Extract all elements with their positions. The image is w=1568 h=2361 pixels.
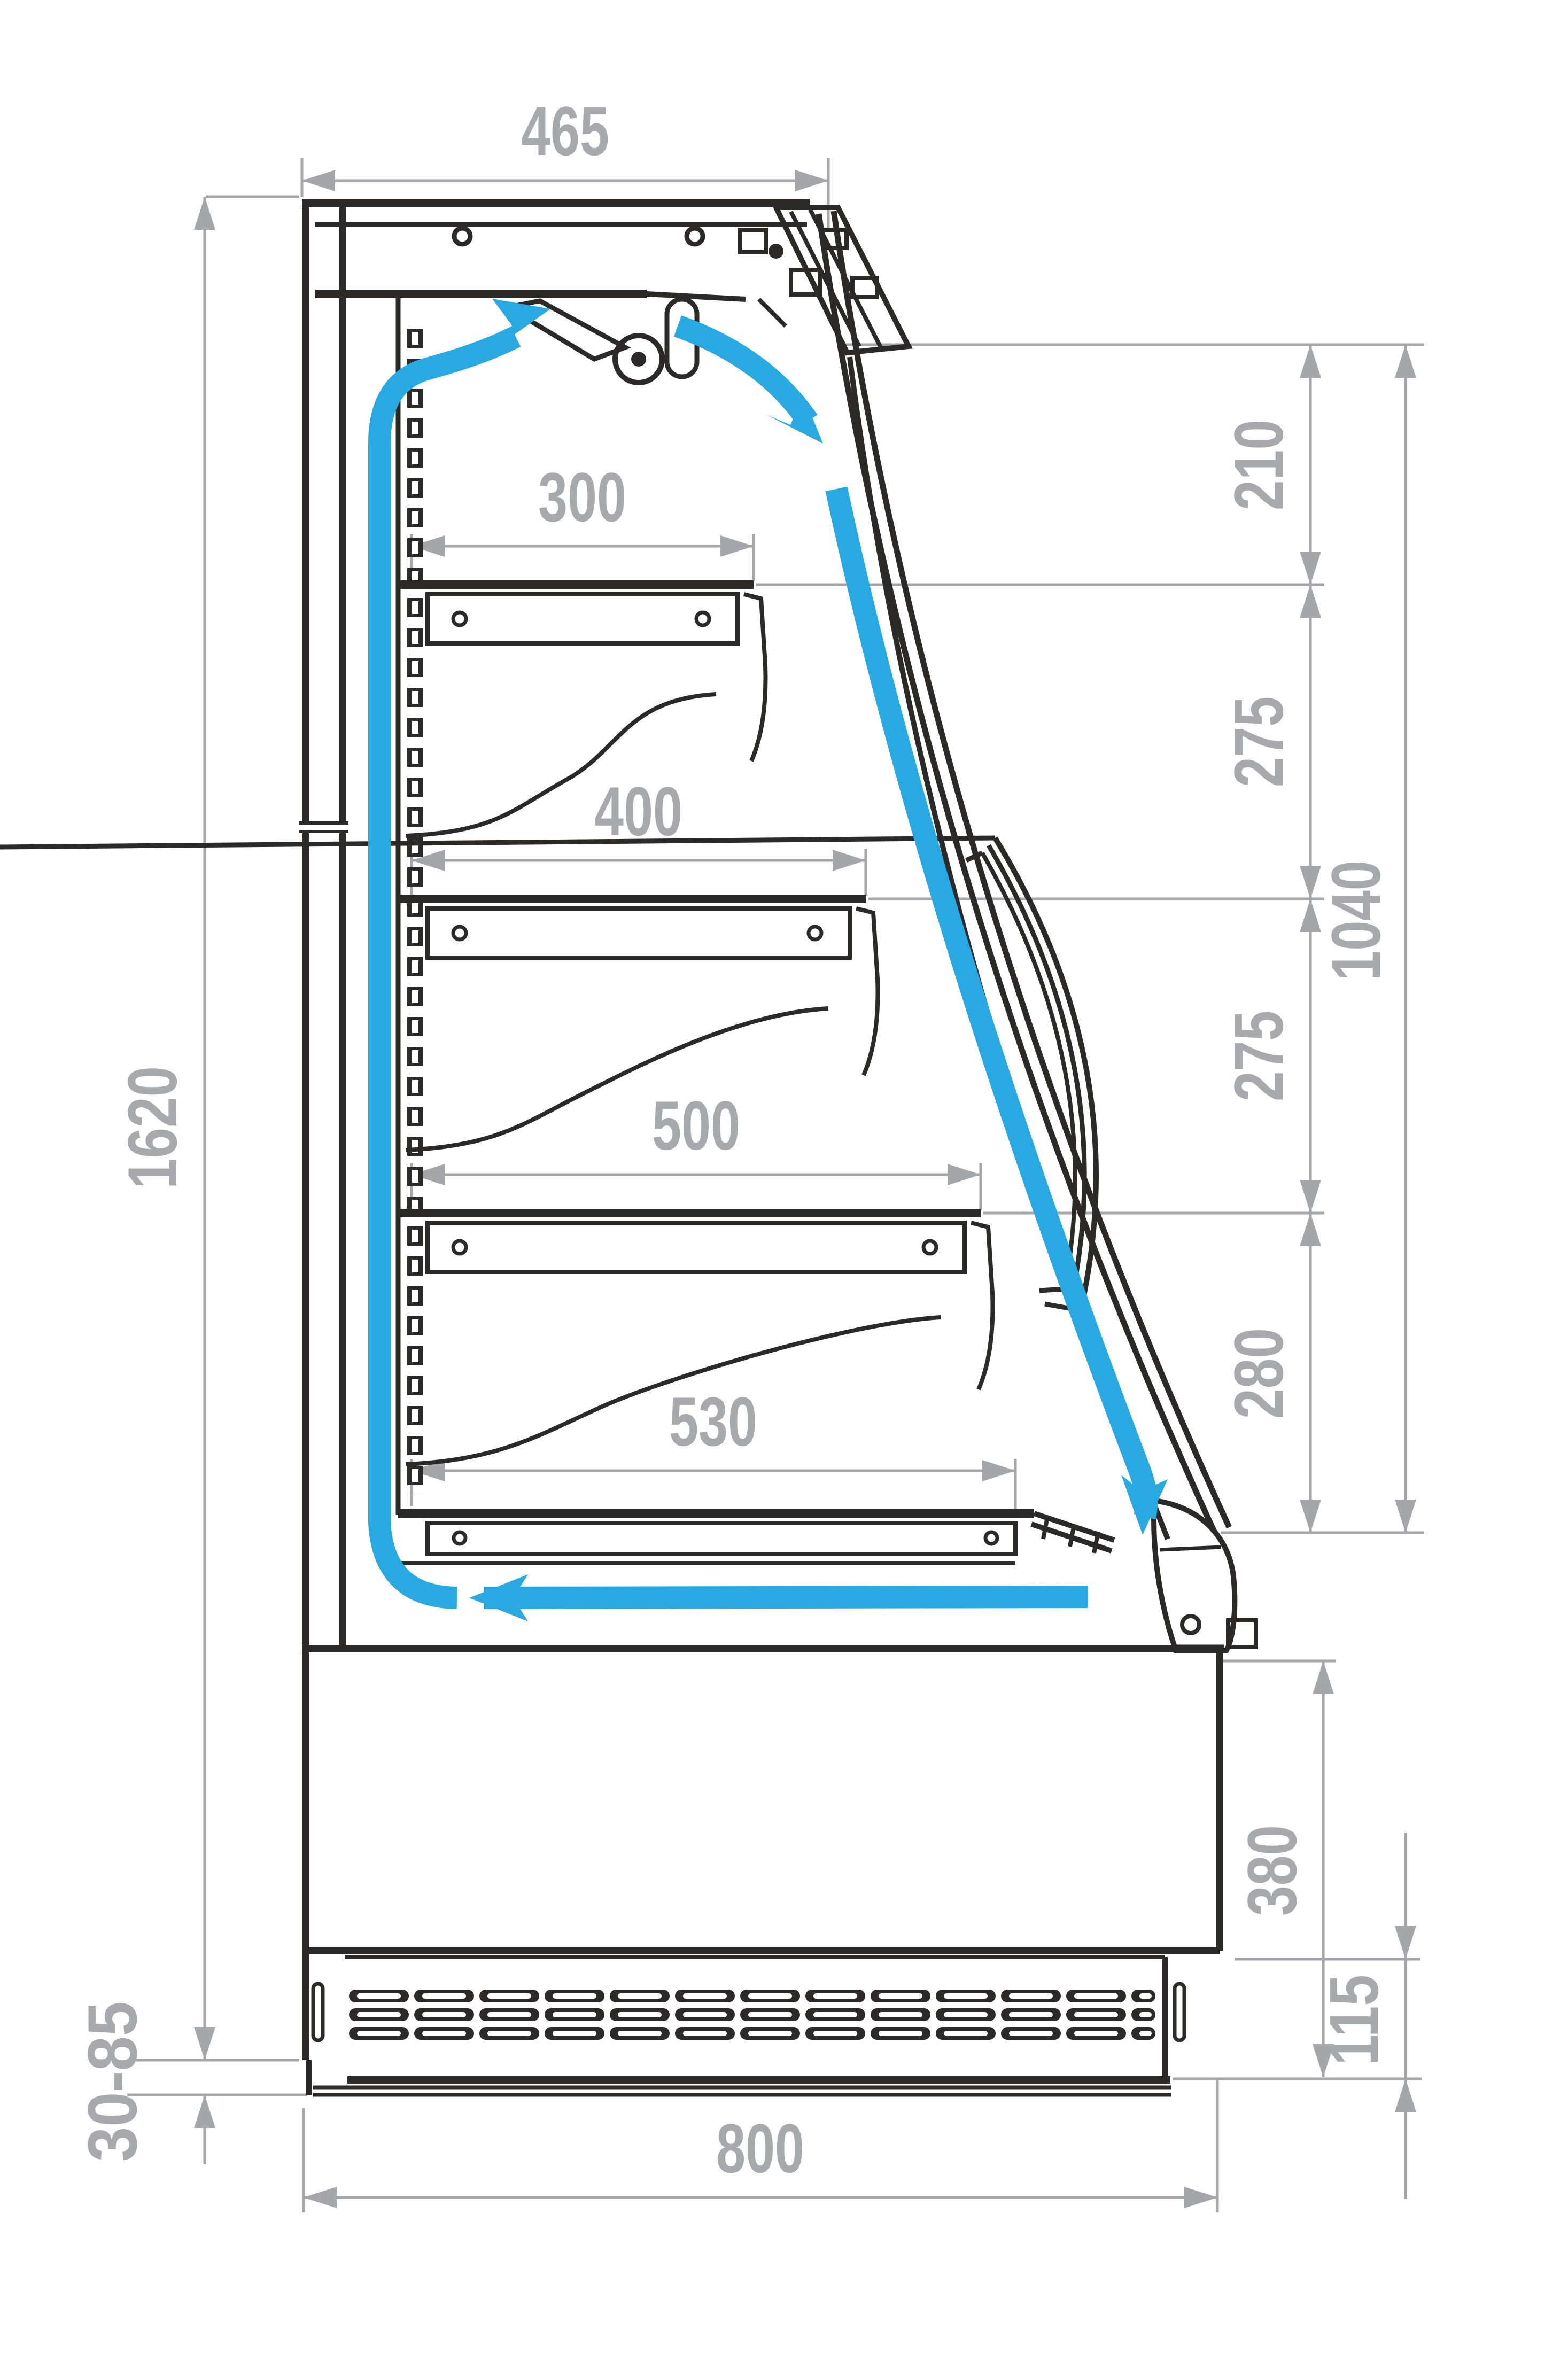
hinge-pin-icon bbox=[769, 244, 783, 259]
dim-label-275a: 275 bbox=[1220, 696, 1298, 787]
front-sill bbox=[1154, 1501, 1256, 1650]
grille-end-slot bbox=[313, 1984, 323, 2040]
bottom-deck bbox=[398, 1513, 1114, 1563]
screw-hole-icon bbox=[809, 927, 821, 939]
dim-label-530: 530 bbox=[669, 1383, 757, 1461]
dim-label-275b: 275 bbox=[1220, 1011, 1298, 1101]
glass-inner-frame bbox=[850, 357, 1168, 1539]
dim-label-465: 465 bbox=[521, 92, 609, 170]
price-rail bbox=[971, 1223, 992, 1389]
dim-label-30-85: 30-85 bbox=[73, 2001, 151, 2162]
dim-foot-range: 30-85 bbox=[73, 2001, 307, 2164]
price-rail bbox=[744, 594, 765, 761]
screw-hole-icon bbox=[696, 612, 709, 625]
dim-label-300: 300 bbox=[538, 458, 626, 536]
base-cabinet bbox=[302, 1649, 1224, 1951]
sill-fastener-icon bbox=[1182, 1616, 1199, 1633]
dim-shelf-gaps-column: 210 275 275 280 bbox=[1220, 345, 1321, 1533]
dim-overall-depth: 800 bbox=[304, 2080, 1217, 2212]
screw-hole-icon bbox=[454, 1532, 465, 1544]
display-case-section-diagram: 465 1620 30-85 bbox=[0, 0, 1568, 2361]
dim-label-1620: 1620 bbox=[113, 1066, 191, 1189]
dim-label-1040: 1040 bbox=[1317, 860, 1395, 981]
screw-hole-icon bbox=[454, 228, 470, 244]
screw-hole-icon bbox=[687, 228, 703, 244]
airflow-air-curtain bbox=[836, 489, 1146, 1517]
dim-grille-height: 115 bbox=[1315, 1833, 1416, 2199]
airflow-layer bbox=[379, 299, 1168, 1621]
screw-hole-icon bbox=[923, 1241, 936, 1254]
canopy-top bbox=[302, 199, 810, 207]
glass-top-clamp bbox=[740, 207, 909, 353]
dim-label-380: 380 bbox=[1233, 1825, 1311, 1916]
arrow-right bbox=[795, 170, 828, 191]
shelf-bracket-curve bbox=[406, 1008, 828, 1150]
airflow-bottom-run bbox=[484, 1597, 1088, 1598]
screw-hole-icon bbox=[453, 612, 466, 625]
dim-shelf3-depth: 500 bbox=[412, 1086, 981, 1210]
screw-hole-icon bbox=[453, 927, 466, 939]
dim-label-280: 280 bbox=[1220, 1328, 1298, 1419]
price-rail bbox=[856, 908, 878, 1075]
rear-wall bbox=[297, 199, 415, 2060]
glass-front bbox=[0, 211, 1229, 1539]
grille-end-slot bbox=[1175, 1984, 1184, 2040]
dim-label-210: 210 bbox=[1220, 420, 1298, 510]
dim-label-500: 500 bbox=[652, 1086, 740, 1164]
dim-label-800: 800 bbox=[716, 2109, 804, 2187]
dim-overall-height: 1620 bbox=[113, 197, 299, 2060]
shelf-1 bbox=[398, 585, 765, 836]
dim-label-115: 115 bbox=[1315, 1975, 1393, 2065]
dim-deck-depth: 530 bbox=[412, 1383, 1015, 1510]
intake-slot bbox=[1043, 1517, 1047, 1539]
arrow-left bbox=[302, 170, 335, 191]
dim-top-depth: 465 bbox=[302, 92, 828, 230]
airflow-curtain-start bbox=[678, 326, 808, 421]
screw-hole-icon bbox=[985, 1532, 997, 1544]
screw-hole-icon bbox=[453, 1241, 466, 1254]
shelf-2 bbox=[398, 899, 878, 1150]
canopy-underside bbox=[315, 290, 647, 298]
technical-drawing-page: 465 1620 30-85 bbox=[0, 0, 1568, 2361]
ventilation-grille bbox=[313, 1957, 1184, 2082]
dim-opening-height: 1040 bbox=[1317, 345, 1416, 1533]
glass-pane-face bbox=[834, 211, 1229, 1527]
dim-shelf2-depth: 400 bbox=[412, 772, 866, 896]
dim-shelf1-depth: 300 bbox=[412, 458, 754, 581]
